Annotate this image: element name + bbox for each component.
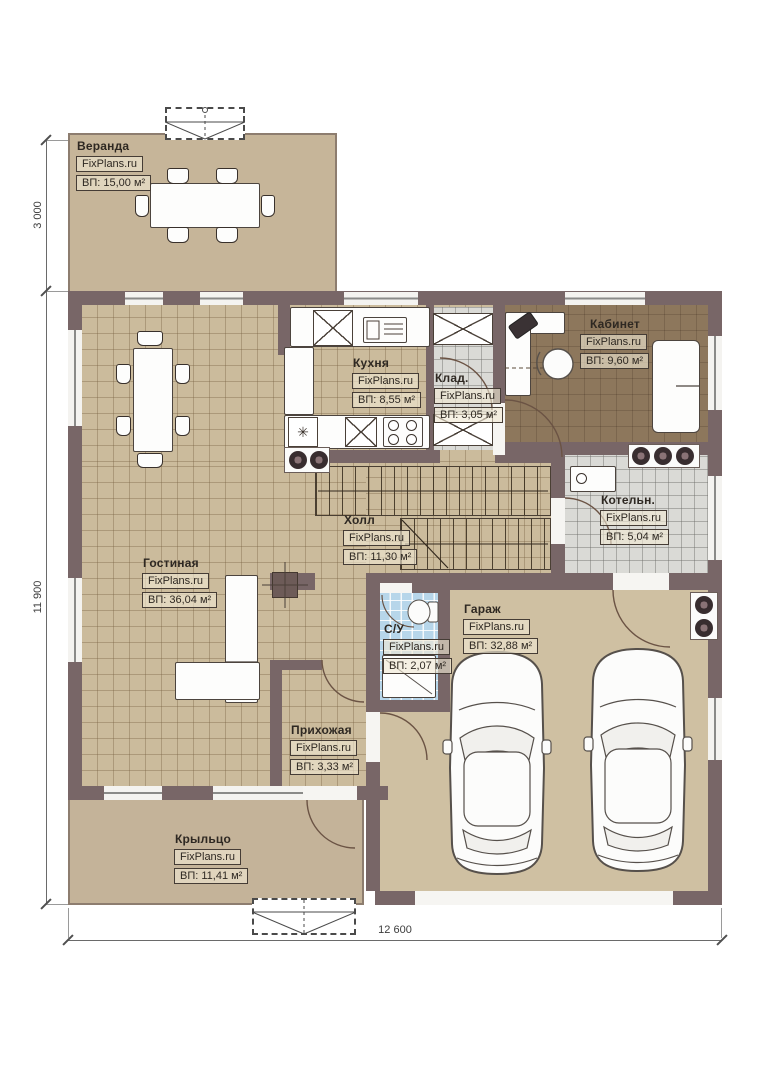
chair [135, 195, 149, 217]
dimension-label-3000: 3 000 [32, 185, 44, 245]
brand-box: FixPlans.ru [463, 619, 530, 635]
room-label-porch: Крыльцо FixPlans.ru ВП: 11,41 м² [174, 832, 248, 884]
room-label-hall: Холл FixPlans.ru ВП: 11,30 м² [343, 513, 417, 565]
oven-icon [363, 317, 407, 343]
room-title: Клад. [435, 371, 503, 385]
wall [270, 662, 282, 786]
room-title: Кабинет [590, 317, 649, 331]
wall [380, 700, 450, 712]
kitchen-cabinet-icon [313, 310, 353, 346]
window [200, 292, 243, 305]
brand-box: FixPlans.ru [343, 530, 410, 546]
extension-line [46, 904, 68, 905]
brand-box: FixPlans.ru [290, 740, 357, 756]
room-label-wc: С/У FixPlans.ru ВП: 2,07 м² [383, 622, 452, 674]
extension-line [46, 140, 68, 141]
brand-box: FixPlans.ru [383, 639, 450, 655]
door-opening-garage-back [613, 573, 669, 590]
chair [167, 168, 189, 184]
room-label-office: Кабинет FixPlans.ru ВП: 9,60 м² [580, 317, 649, 369]
area-box: ВП: 36,04 м² [142, 592, 217, 608]
area-box: ВП: 11,30 м² [343, 549, 417, 565]
room-title: Котельн. [601, 493, 669, 507]
chair [175, 364, 190, 384]
flue-icon [289, 451, 307, 469]
dimension-line-bottom [68, 940, 722, 941]
window [708, 698, 722, 760]
room-title: Холл [344, 513, 417, 527]
area-box: ВП: 8,55 м² [352, 392, 421, 408]
area-box: ВП: 15,00 м² [76, 175, 151, 191]
boiler-dial-icon [576, 473, 587, 484]
dimension-label-11900: 11 900 [32, 567, 44, 627]
window [68, 330, 82, 426]
floor-plan: 3 000 11 900 12 600 [0, 0, 763, 1080]
room-title: Прихожая [291, 723, 359, 737]
brand-box: FixPlans.ru [434, 388, 501, 404]
window [708, 476, 722, 560]
area-box: ВП: 32,88 м² [463, 638, 538, 654]
dimension-label-12600: 12 600 [345, 924, 445, 936]
kitchen-counter-top [290, 307, 430, 347]
wall [450, 573, 722, 590]
extension-line [721, 908, 722, 938]
door-opening-boiler [551, 498, 565, 544]
brand-box: FixPlans.ru [174, 849, 241, 865]
window [708, 336, 722, 410]
burner-icon [406, 434, 417, 445]
room-title: Кухня [353, 356, 421, 370]
area-box: ВП: 3,05 м² [434, 407, 503, 423]
office-sofa [652, 340, 700, 433]
stairs-lower-flight [400, 518, 551, 570]
extension-line [46, 291, 68, 292]
door-opening-porch [303, 786, 357, 800]
room-title: С/У [384, 622, 452, 636]
room-title: Гараж [464, 602, 538, 616]
room-label-entry: Прихожая FixPlans.ru ВП: 3,33 м² [290, 723, 359, 775]
door-opening-bathroom [380, 583, 412, 593]
flue-icon [695, 619, 713, 637]
dining-table [133, 348, 173, 452]
roof-vent-bottom [252, 898, 356, 935]
room-title: Веранда [77, 139, 151, 153]
storage-cabinet-icon [433, 313, 493, 345]
window [104, 786, 162, 800]
sofa-horizontal [175, 662, 260, 700]
garage-door-opening [415, 891, 673, 905]
window [344, 292, 418, 305]
chair [116, 364, 131, 384]
flue-icon [676, 447, 694, 465]
room-title: Гостиная [143, 556, 217, 570]
kitchen-cabinet-icon [345, 417, 377, 447]
burner-icon [388, 434, 399, 445]
chair [137, 331, 163, 346]
room-label-storage: Клад. FixPlans.ru ВП: 3,05 м² [434, 371, 503, 423]
roof-vent-top [165, 107, 245, 140]
area-box: ВП: 3,33 м² [290, 759, 359, 775]
brand-box: FixPlans.ru [600, 510, 667, 526]
brand-box: FixPlans.ru [76, 156, 143, 172]
flue-icon [695, 596, 713, 614]
door-opening-garage-side [366, 712, 380, 762]
brand-box: FixPlans.ru [142, 573, 209, 589]
chair [167, 227, 189, 243]
desk-side [505, 312, 531, 396]
room-label-kitchen: Кухня FixPlans.ru ВП: 8,55 м² [352, 356, 421, 408]
area-box: ВП: 9,60 м² [580, 353, 649, 369]
burner-icon [406, 420, 417, 431]
chimney-column [272, 572, 298, 598]
fridge [284, 347, 314, 415]
area-box: ВП: 5,04 м² [600, 529, 669, 545]
window [68, 578, 82, 662]
veranda-table [150, 183, 260, 228]
brand-box: FixPlans.ru [580, 334, 647, 350]
chair [137, 453, 163, 468]
extension-line [68, 908, 69, 938]
room-label-living: Гостиная FixPlans.ru ВП: 36,04 м² [142, 556, 217, 608]
flue-icon [632, 447, 650, 465]
chair [175, 416, 190, 436]
room-title: Крыльцо [175, 832, 248, 846]
flue-icon [654, 447, 672, 465]
freezer-icon: ✳ [288, 417, 318, 447]
flue-icon [310, 451, 328, 469]
chair [216, 227, 238, 243]
dimension-line-left [46, 140, 47, 905]
room-label-veranda: Веранда FixPlans.ru ВП: 15,00 м² [76, 139, 151, 191]
burner-icon [388, 420, 399, 431]
room-label-garage: Гараж FixPlans.ru ВП: 32,88 м² [463, 602, 538, 654]
chair [116, 416, 131, 436]
window [213, 786, 305, 800]
room-label-boiler: Котельн. FixPlans.ru ВП: 5,04 м² [600, 493, 669, 545]
chair [216, 168, 238, 184]
window [565, 292, 645, 305]
area-box: ВП: 11,41 м² [174, 868, 248, 884]
brand-box: FixPlans.ru [352, 373, 419, 389]
area-box: ВП: 2,07 м² [383, 658, 452, 674]
window [125, 292, 163, 305]
stairs-upper-flight [315, 466, 551, 516]
chair [261, 195, 275, 217]
